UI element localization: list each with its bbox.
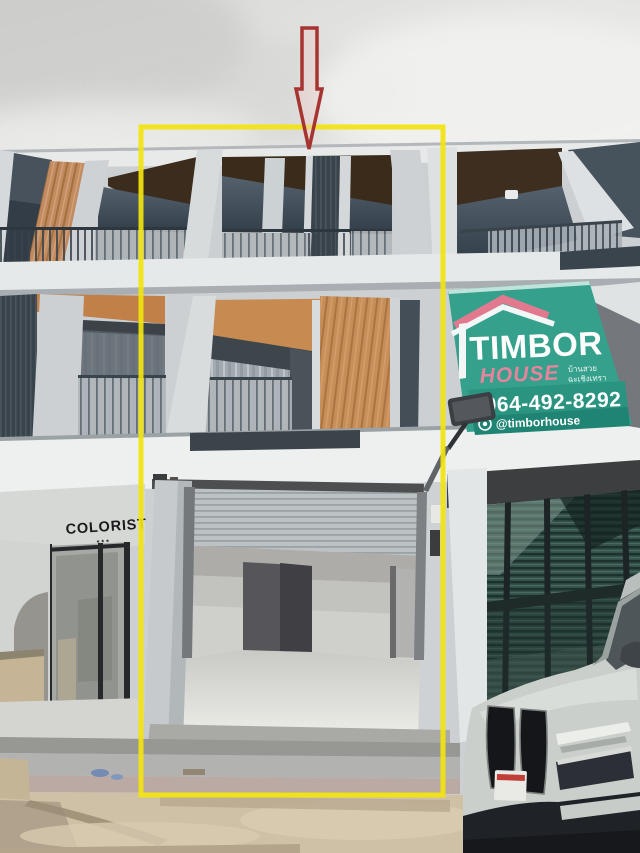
svg-text:HOUSE: HOUSE bbox=[479, 362, 560, 388]
svg-text:บ้านสวย: บ้านสวย bbox=[568, 364, 597, 374]
svg-text:TIMBOR: TIMBOR bbox=[469, 324, 604, 367]
